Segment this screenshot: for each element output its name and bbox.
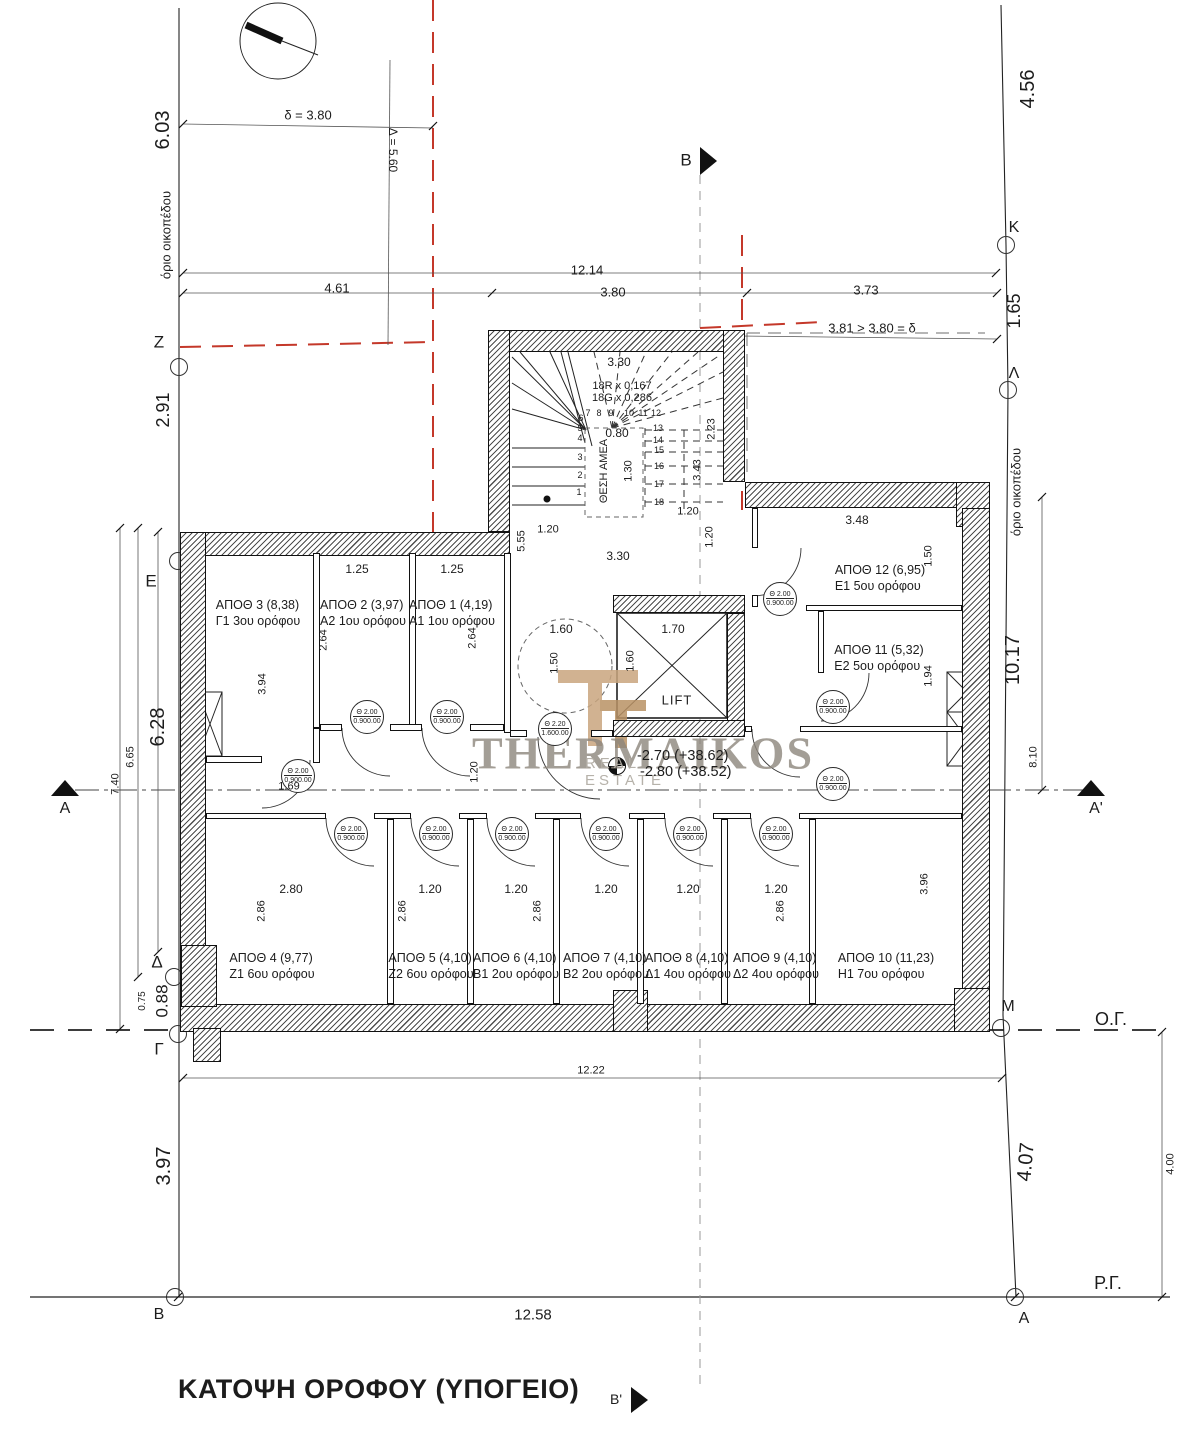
wall-upper-south-seg1 bbox=[320, 724, 342, 731]
dim-stair-130: 1.30 bbox=[624, 460, 635, 481]
wall-lift-top bbox=[613, 595, 745, 613]
room-apoth-2: ΑΠΟΘ 2 (3,97)Α2 1ου ορόφου bbox=[320, 597, 406, 630]
room-id: ΑΠΟΘ 7 (4,10) bbox=[563, 950, 649, 966]
floor-plan-drawing: THERMAIKOS REAL ESTATE LIFT 18R x 0,167 … bbox=[0, 0, 1200, 1441]
door-width-tag: 0.900.00 bbox=[819, 783, 846, 792]
dim-075: 0.75 bbox=[138, 991, 148, 1010]
wall-corridor-south-seg7 bbox=[799, 813, 962, 819]
upper-floor-outline-dashed bbox=[747, 333, 985, 480]
section-label-b-bottom: B' bbox=[610, 1392, 622, 1406]
section-arrow-a-left bbox=[51, 780, 79, 796]
wall-corridor-south-seg1 bbox=[206, 813, 326, 819]
door-width-tag: 0.900.00 bbox=[762, 833, 789, 842]
dim-396: 3.96 bbox=[920, 873, 931, 894]
wall-right-corridor-seg2 bbox=[800, 726, 962, 732]
dim-120-r6: 1.20 bbox=[504, 883, 527, 895]
dim-286-b: 2.86 bbox=[398, 900, 409, 921]
wall-corner-bottom-right bbox=[954, 988, 990, 1032]
dim-120-r8: 1.20 bbox=[676, 883, 699, 895]
room-apoth-6: ΑΠΟΘ 6 (4,10)Β1 2ου ορόφου bbox=[473, 950, 559, 983]
dim-1017: 10.17 bbox=[1003, 635, 1023, 685]
room-apoth-4: ΑΠΟΘ 4 (9,77)Ζ1 6ου ορόφου bbox=[229, 950, 314, 983]
room-floor-ref: Δ1 4ου ορόφου bbox=[645, 966, 731, 982]
section-arrow-a-right bbox=[1077, 780, 1105, 796]
building-line-label: Ο.Γ. bbox=[1095, 1010, 1127, 1028]
door-height-tag: Θ 2.00 bbox=[769, 591, 790, 598]
level-marker-icon bbox=[609, 758, 626, 775]
stair-step-number: 1 bbox=[576, 487, 581, 497]
stair-step-number: 9 bbox=[608, 408, 613, 418]
dim-170-lift: 1.70 bbox=[661, 623, 684, 635]
stair-step-number: 3 bbox=[577, 452, 582, 462]
room-id: ΑΠΟΘ 11 (5,32) bbox=[834, 642, 923, 658]
marker-M: M bbox=[1001, 999, 1014, 1015]
stair-step-number: 5 bbox=[577, 423, 582, 433]
door-height-tag: Θ 2.00 bbox=[822, 699, 843, 706]
room-floor-ref: Δ2 4ου ορόφου bbox=[733, 966, 819, 982]
dim-810: 8.10 bbox=[1029, 746, 1040, 767]
room-id: ΑΠΟΘ 10 (11,23) bbox=[838, 950, 934, 966]
wall-upper-south-seg2 bbox=[390, 724, 422, 731]
lift-label: LIFT bbox=[662, 693, 693, 708]
dim-125-a: 1.25 bbox=[345, 563, 368, 575]
wall-upper-south-seg3 bbox=[470, 724, 504, 731]
dim-125-b: 1.25 bbox=[440, 563, 463, 575]
door-width-tag: 0.900.00 bbox=[498, 833, 525, 842]
dim-120-r5: 1.20 bbox=[418, 883, 441, 895]
stair-step-number: 2 bbox=[577, 470, 582, 480]
partition-rooms-12-11 bbox=[806, 605, 962, 611]
wall-lift-bottom bbox=[613, 720, 745, 737]
dim-Delta-560: Δ = 5.60 bbox=[387, 128, 399, 172]
room-id: ΑΠΟΘ 1 (4,19) bbox=[409, 597, 495, 613]
wall-right-outer bbox=[962, 508, 990, 1032]
dim-407: 4.07 bbox=[1014, 1142, 1037, 1183]
wall-pier-bottom-left bbox=[193, 1028, 221, 1062]
room-floor-ref: Η1 7ου ορόφου bbox=[838, 966, 934, 982]
stair-step-number: 15 bbox=[654, 445, 664, 455]
room-apoth-1: ΑΠΟΘ 1 (4,19)Α1 1ου ορόφου bbox=[409, 597, 495, 630]
room-floor-ref: Β1 2ου ορόφου bbox=[473, 966, 559, 982]
level-annotation-1: -2.70 (+38.62) bbox=[637, 748, 729, 764]
door-tag: Θ 2.000.900.00 bbox=[419, 817, 453, 851]
dim-280: 2.80 bbox=[279, 883, 302, 895]
dim-stair-223: 2.23 bbox=[707, 418, 718, 439]
door-width-tag: 0.900.00 bbox=[422, 833, 449, 842]
room-apoth-8: ΑΠΟΘ 8 (4,10)Δ1 4ου ορόφου bbox=[645, 950, 731, 983]
door-width-tag: 0.900.00 bbox=[819, 706, 846, 715]
door-tag: Θ 2.000.900.00 bbox=[816, 690, 850, 724]
door-height-tag: Θ 2.00 bbox=[595, 826, 616, 833]
dim-1258: 12.58 bbox=[514, 1308, 552, 1323]
wall-lobby-south-seg2 bbox=[591, 730, 613, 737]
marker-Delta: Δ bbox=[151, 954, 162, 971]
dim-461: 4.61 bbox=[324, 282, 349, 295]
dim-330-lobby: 3.30 bbox=[606, 550, 629, 562]
dim-120-stair-right: 1.20 bbox=[677, 507, 698, 518]
door-width-tag: 0.900.00 bbox=[353, 716, 380, 725]
note-381-380: 3.81 > 3.80 = δ bbox=[828, 322, 915, 335]
marker-A-bottom: A bbox=[1019, 1311, 1030, 1327]
dim-160-lift: 1.60 bbox=[549, 623, 572, 635]
section-arrow-b-bottom bbox=[631, 1387, 648, 1413]
dim-400: 4.00 bbox=[1166, 1153, 1177, 1174]
room-floor-ref: Β2 2ου ορόφου bbox=[563, 966, 649, 982]
dim-264-b: 2.64 bbox=[468, 627, 479, 648]
partition-upper-2 bbox=[409, 553, 416, 728]
door-tag: Θ 2.000.900.00 bbox=[763, 582, 797, 616]
wall-top-left-wing bbox=[180, 532, 510, 556]
room-id: ΑΠΟΘ 4 (9,77) bbox=[229, 950, 314, 966]
room-apoth-11: ΑΠΟΘ 11 (5,32)Ε2 5ου ορόφου bbox=[834, 642, 923, 675]
door-height-tag: Θ 2.00 bbox=[356, 709, 377, 716]
dim-169: 1.69 bbox=[278, 782, 299, 793]
dim-665: 6.65 bbox=[126, 746, 137, 767]
marker-Z: Z bbox=[154, 334, 164, 351]
dim-603: 6.03 bbox=[153, 111, 173, 150]
door-tag: Θ 2.000.900.00 bbox=[495, 817, 529, 851]
door-tag: Θ 2.000.900.00 bbox=[816, 767, 850, 801]
dim-delta-380: δ = 3.80 bbox=[284, 109, 331, 122]
door-height-tag: Θ 2.00 bbox=[822, 776, 843, 783]
marker-K: K bbox=[1009, 220, 1020, 236]
dim-286-d: 2.86 bbox=[776, 900, 787, 921]
room-floor-ref: Γ1 3ου ορόφου bbox=[216, 613, 300, 629]
wall-room12-west-a bbox=[752, 508, 758, 548]
dim-120-stair-left: 1.20 bbox=[537, 525, 558, 536]
door-height-tag: Θ 2.00 bbox=[679, 826, 700, 833]
dim-120-corr-left: 1.20 bbox=[470, 761, 481, 782]
door-width-tag: 0.900.00 bbox=[676, 833, 703, 842]
room-floor-ref: Ζ2 6ου ορόφου bbox=[388, 966, 473, 982]
room-floor-ref: Α1 1ου ορόφου bbox=[409, 613, 495, 629]
plot-boundary-label-right: όριο οικοπέδου bbox=[1010, 448, 1023, 536]
dim-348: 3.48 bbox=[845, 514, 868, 526]
door-height-tag: Θ 2.00 bbox=[425, 826, 446, 833]
dim-555: 5.55 bbox=[517, 530, 528, 551]
room-apoth-12: ΑΠΟΘ 12 (6,95)Ε1 5ου ορόφου bbox=[835, 562, 925, 595]
level-annotation-2: -2.80 (+38.52) bbox=[640, 764, 732, 780]
wall-bottom-outer bbox=[180, 1004, 990, 1032]
dim-291: 2.91 bbox=[154, 392, 172, 427]
room-id: ΑΠΟΘ 5 (4,10) bbox=[388, 950, 473, 966]
door-tag: Θ 2.000.900.00 bbox=[334, 817, 368, 851]
wall-stair-top bbox=[488, 330, 745, 352]
room-id: ΑΠΟΘ 2 (3,97) bbox=[320, 597, 406, 613]
dim-456: 4.56 bbox=[1018, 70, 1038, 109]
room-apoth-5: ΑΠΟΘ 5 (4,10)Ζ2 6ου ορόφου bbox=[388, 950, 473, 983]
dim-373: 3.73 bbox=[853, 284, 878, 297]
stair-step-number: 10 bbox=[624, 408, 634, 418]
stair-riser-note: 18R x 0,167 bbox=[592, 380, 651, 392]
door-width-tag: 0.900.00 bbox=[337, 833, 364, 842]
room-apoth-7: ΑΠΟΘ 7 (4,10)Β2 2ου ορόφου bbox=[563, 950, 649, 983]
dim-264-a: 2.64 bbox=[319, 629, 330, 650]
marker-Lambda: Λ bbox=[1009, 366, 1020, 382]
wall-lobby-south-seg1 bbox=[510, 730, 527, 737]
stair-step-number: 16 bbox=[654, 461, 664, 471]
street-line-label: Ρ.Γ. bbox=[1094, 1274, 1122, 1292]
north-compass-icon bbox=[240, 3, 318, 79]
dim-1222: 12.22 bbox=[577, 1066, 605, 1077]
marker-E: E bbox=[145, 573, 156, 590]
door-height-tag: Θ 2.00 bbox=[765, 826, 786, 833]
marker-Gamma: Γ bbox=[154, 1041, 163, 1058]
dim-286-a: 2.86 bbox=[257, 900, 268, 921]
wall-stair-right bbox=[723, 330, 745, 482]
door-width-tag: 0.900.00 bbox=[433, 716, 460, 725]
dim-628: 6.28 bbox=[148, 708, 168, 747]
wall-corridor-south-seg5 bbox=[629, 813, 665, 819]
door-height-tag: Θ 2.20 bbox=[544, 721, 565, 728]
stair-step-number: 18 bbox=[654, 497, 664, 507]
room-apoth-9: ΑΠΟΘ 9 (4,10)Δ2 4ου ορόφου bbox=[733, 950, 819, 983]
door-height-tag: Θ 2.00 bbox=[340, 826, 361, 833]
stair-step-number: 13 bbox=[653, 423, 663, 433]
wall-corridor-south-seg6 bbox=[713, 813, 751, 819]
stair-step-number: 4 bbox=[577, 433, 582, 443]
stair-step-number: 6 bbox=[578, 413, 583, 423]
dim-165: 1.65 bbox=[1005, 293, 1023, 328]
section-label-a-right: A' bbox=[1089, 801, 1103, 817]
stair-step-number: 11 bbox=[638, 408, 647, 418]
room-id: ΑΠΟΘ 8 (4,10) bbox=[645, 950, 731, 966]
dim-194: 1.94 bbox=[924, 665, 935, 686]
wall-right-corridor-seg1 bbox=[745, 726, 752, 732]
section-arrow-b-top bbox=[700, 147, 717, 175]
room-floor-ref: Ζ1 6ου ορόφου bbox=[229, 966, 314, 982]
wall-lift-right bbox=[727, 613, 745, 737]
dim-120-lobby-vert: 1.20 bbox=[705, 526, 716, 547]
room-floor-ref: Α2 1ου ορόφου bbox=[320, 613, 406, 629]
room-apoth-3: ΑΠΟΘ 3 (8,38)Γ1 3ου ορόφου bbox=[216, 597, 300, 630]
dim-150-lift: 1.50 bbox=[550, 652, 561, 673]
partition-lobby-west bbox=[504, 553, 511, 733]
dim-stair-343: 3.43 bbox=[693, 459, 704, 480]
door-tag: Θ 2.000.900.00 bbox=[430, 700, 464, 734]
door-width-tag: 1.600.00 bbox=[541, 728, 568, 737]
stair-step-number: 12 bbox=[651, 408, 661, 418]
drawing-title: ΚΑΤΟΨΗ ΟΡΟΦΟΥ (ΥΠΟΓΕΙΟ) bbox=[178, 1374, 579, 1405]
dim-160-lift-vert: 1.60 bbox=[626, 650, 637, 671]
dim-286-c: 2.86 bbox=[533, 900, 544, 921]
wall-top-right-wing bbox=[745, 482, 990, 508]
room-id: ΑΠΟΘ 9 (4,10) bbox=[733, 950, 819, 966]
room-apoth-10: ΑΠΟΘ 10 (11,23)Η1 7ου ορόφου bbox=[838, 950, 934, 983]
dim-740: 7.40 bbox=[111, 773, 122, 794]
stair-going-note: 18G x 0,286 bbox=[592, 392, 652, 404]
dim-394: 3.94 bbox=[258, 673, 269, 694]
door-height-tag: Θ 2.00 bbox=[436, 709, 457, 716]
amea-parking-label: ΘΕΣΗ ΑΜΕΑ bbox=[598, 439, 610, 503]
door-height-tag: Θ 2.00 bbox=[287, 768, 308, 775]
section-label-a-left: A bbox=[60, 801, 71, 817]
entrance-door-tag: Θ 2.201.600.00 bbox=[538, 712, 572, 746]
stair-step-number: 17 bbox=[654, 479, 664, 489]
plot-boundary-label-left: όριο οικοπέδου bbox=[160, 191, 173, 279]
stair-step-number: 14 bbox=[653, 435, 663, 445]
room-floor-ref: Ε1 5ου ορόφου bbox=[835, 578, 925, 594]
wall-corner-bottom-left bbox=[181, 945, 217, 1007]
door-width-tag: 0.900.00 bbox=[766, 598, 793, 607]
dim-120-r9: 1.20 bbox=[764, 883, 787, 895]
stair-step-number: 8 bbox=[596, 408, 601, 418]
dim-088: 0.88 bbox=[154, 984, 171, 1017]
wall-room3-east bbox=[313, 728, 320, 763]
dim-stair-330: 3.30 bbox=[607, 356, 630, 368]
door-tag: Θ 2.000.900.00 bbox=[759, 817, 793, 851]
room-id: ΑΠΟΘ 12 (6,95) bbox=[835, 562, 925, 578]
wall-room12-west-b bbox=[752, 595, 758, 607]
wall-room3-south bbox=[206, 756, 262, 763]
wall-stair-left bbox=[488, 330, 510, 532]
door-width-tag: 0.900.00 bbox=[592, 833, 619, 842]
dim-380-top: 3.80 bbox=[600, 286, 625, 299]
stair-step-number: 7 bbox=[585, 408, 590, 418]
door-tag: Θ 2.000.900.00 bbox=[589, 817, 623, 851]
room-id: ΑΠΟΘ 6 (4,10) bbox=[473, 950, 559, 966]
section-label-b-top: B bbox=[680, 152, 691, 169]
door-tag: Θ 2.000.900.00 bbox=[673, 817, 707, 851]
room-id: ΑΠΟΘ 3 (8,38) bbox=[216, 597, 300, 613]
door-height-tag: Θ 2.00 bbox=[501, 826, 522, 833]
dim-397: 3.97 bbox=[154, 1147, 174, 1186]
wall-room11-west bbox=[818, 611, 824, 673]
dim-1214: 12.14 bbox=[571, 264, 604, 277]
dim-120-r7: 1.20 bbox=[594, 883, 617, 895]
door-tag: Θ 2.000.900.00 bbox=[350, 700, 384, 734]
marker-B-bottom: B bbox=[154, 1307, 165, 1323]
dim-stair-080: 0.80 bbox=[605, 427, 628, 439]
room-floor-ref: Ε2 5ου ορόφου bbox=[834, 658, 923, 674]
